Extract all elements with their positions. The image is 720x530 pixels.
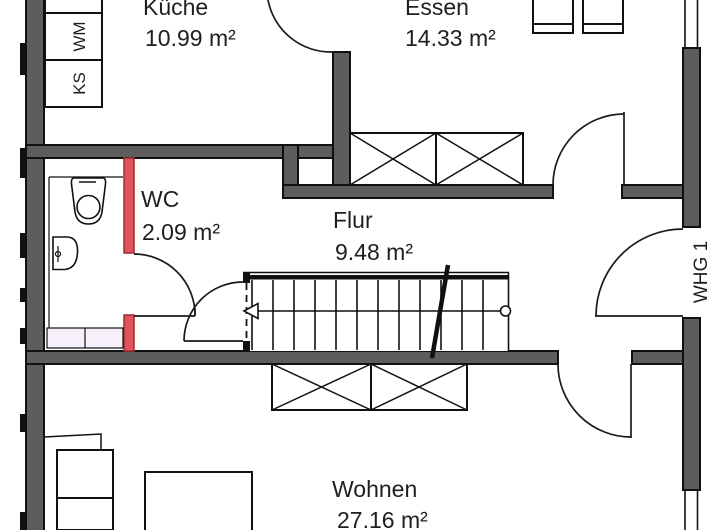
appliance-label-ks: KS (70, 72, 89, 95)
stairs-jamb-top (243, 273, 250, 283)
wall-kueche-south (26, 145, 350, 158)
room-label-flur: Flur (333, 207, 373, 233)
appliance-label-wm: WM (70, 21, 89, 51)
wall-wc-red-upper (124, 158, 134, 253)
wall-essen-door-stub (622, 185, 683, 198)
room-label-wohnen: Wohnen (332, 476, 417, 502)
area-label-wc: 2.09 m² (142, 219, 220, 245)
stairs-jamb-bottom (243, 341, 250, 351)
wall-kueche-essen-divider (333, 52, 350, 190)
stairs-body (243, 273, 509, 351)
wall-right-lower (683, 318, 700, 490)
wall-flur-south (26, 351, 558, 364)
wc-vanity (47, 328, 123, 348)
wall-flur-north (283, 185, 553, 198)
wall-wohnen-door-stub (632, 351, 683, 364)
stairs-walk-line-start-icon (501, 306, 511, 316)
stairs (243, 265, 511, 358)
cabinet-wohnen (272, 364, 467, 410)
room-label-kueche: Küche (143, 0, 208, 20)
sink-icon (53, 237, 78, 270)
wall-left-outer (26, 0, 44, 530)
area-label-wohnen: 27.16 m² (337, 507, 428, 530)
wall-niche (298, 158, 333, 185)
wall-wc-red-lower (124, 315, 134, 351)
room-label-wc: WC (141, 186, 179, 212)
floor-plan-canvas: WM KS (0, 0, 720, 530)
room-label-essen: Essen (405, 0, 469, 20)
unit-label-whg1: WHG 1 (691, 241, 712, 303)
area-label-essen: 14.33 m² (405, 25, 496, 51)
area-label-kueche: 10.99 m² (145, 25, 236, 51)
wall-right-upper (683, 48, 700, 227)
appliance-box-top (45, 0, 102, 13)
cabinet-essen (350, 133, 523, 185)
floor-plan: WM KS (0, 0, 720, 530)
area-label-flur: 9.48 m² (335, 239, 413, 265)
